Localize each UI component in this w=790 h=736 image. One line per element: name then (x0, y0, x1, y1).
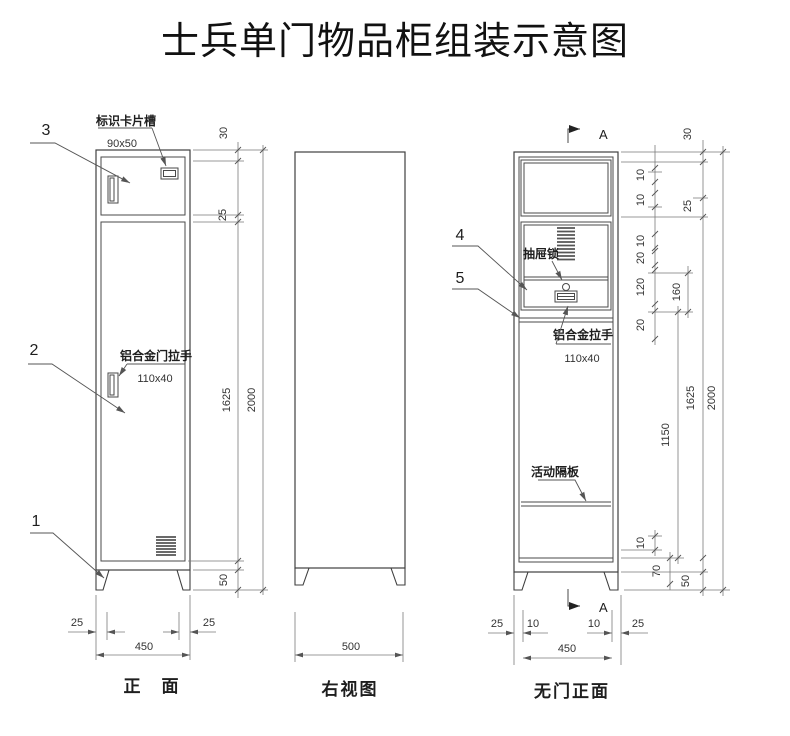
side-foot-right (391, 568, 405, 585)
front-dim-1625: 1625 (221, 388, 233, 412)
drawer-handle-label: 铝合金拉手 (553, 327, 613, 342)
nodoor-right-dims: 10 10 10 20 120 20 10 70 160 1150 30 25 … (621, 128, 730, 596)
front-dim-left-25: 25 (71, 617, 83, 629)
balloon-2: 2 (30, 342, 39, 359)
nd-dim-25: 25 (682, 200, 694, 212)
balloon-1: 1 (32, 513, 41, 530)
front-handle-label: 铝合金门拉手 (120, 348, 192, 363)
nd-dim-2000: 2000 (706, 386, 718, 410)
nd-dim-10c: 10 (635, 235, 647, 247)
nd-dim-70: 70 (651, 565, 663, 577)
section-letter-bottom: A (599, 600, 608, 615)
side-dim-500: 500 (342, 641, 360, 653)
drawer-lock-label: 抽屉锁 (523, 246, 559, 261)
balloon-5: 5 (456, 270, 465, 287)
nd-dim-50: 50 (680, 575, 692, 587)
front-dim-2000: 2000 (246, 388, 258, 412)
drawer-handle-size: 110x40 (564, 353, 599, 365)
section-letter-top: A (599, 127, 608, 142)
front-cabinet-outline (96, 150, 190, 590)
front-handle-size: 110x40 (137, 373, 172, 385)
nd-dim-1150: 1150 (660, 423, 672, 447)
nd-dim-b25r: 25 (632, 618, 644, 630)
nodoor-cabinet-outline (514, 152, 618, 590)
card-slot-label: 标识卡片槽 (95, 113, 156, 128)
nd-dim-b10l: 10 (527, 618, 539, 630)
nd-dim-b10r: 10 (588, 618, 600, 630)
drawing-title: 士兵单门物品柜组装示意图 (161, 21, 629, 63)
front-dim-50: 50 (218, 574, 230, 586)
front-bottom-dims: 25 25 450 (68, 595, 216, 660)
section-mark-top: A (568, 127, 608, 143)
front-dim-right-25: 25 (203, 617, 215, 629)
nd-dim-10d: 10 (635, 537, 647, 549)
shelf-label: 活动隔板 (531, 464, 580, 479)
front-right-dims: 30 25 1625 2000 50 (188, 127, 268, 598)
front-view: 3 2 1 标识卡片槽 90x50 铝合金门拉手 110x40 30 25 16… (28, 113, 268, 696)
side-bottom-dims: 500 (295, 612, 403, 662)
assembly-drawing: 士兵单门物品柜组装示意图 3 2 1 (0, 0, 790, 736)
card-slot-size: 90x50 (107, 138, 137, 150)
nd-dim-1625: 1625 (685, 386, 697, 410)
shelf-leader (538, 480, 586, 501)
card-slot (161, 168, 178, 179)
side-view-label: 右视图 (322, 679, 379, 699)
vent-grille-front (156, 537, 176, 555)
nodoor-view-label: 无门正面 (533, 681, 610, 701)
balloon-4: 4 (456, 227, 465, 244)
drawer-handle (555, 291, 577, 302)
drawing-sheet: 士兵单门物品柜组装示意图 3 2 1 (0, 0, 790, 736)
front-dim-25: 25 (217, 209, 229, 221)
side-cabinet-outline (295, 152, 405, 568)
front-dim-450: 450 (135, 641, 153, 653)
front-dim-30: 30 (218, 127, 230, 139)
nd-dim-20a: 20 (635, 252, 647, 264)
nd-dim-20b: 20 (635, 319, 647, 331)
nd-dim-450: 450 (558, 643, 576, 655)
nd-dim-10b: 10 (635, 194, 647, 206)
front-handle-leader (119, 364, 127, 376)
leader-balloon-5 (452, 289, 520, 318)
drawer-lock-cylinder (563, 284, 570, 291)
section-mark-bottom: A (568, 589, 608, 615)
main-door-handle (108, 373, 118, 397)
nodoor-view: A A 4 5 抽屉锁 铝合金拉手 110x40 活动隔板 10 10 (452, 127, 730, 701)
balloon-3: 3 (42, 122, 51, 139)
nd-dim-b25l: 25 (491, 618, 503, 630)
side-view: 500 右视图 (295, 152, 405, 699)
leader-balloon-1 (30, 533, 104, 578)
nd-dim-10a: 10 (635, 169, 647, 181)
top-door-handle (108, 176, 118, 203)
front-view-label: 正 面 (124, 677, 181, 696)
nd-dim-160: 160 (671, 283, 683, 301)
nd-dim-30: 30 (682, 128, 694, 140)
vent-grille-nodoor (557, 228, 575, 260)
side-foot-left (295, 568, 309, 585)
nd-dim-120: 120 (635, 278, 647, 296)
card-slot-leader (152, 128, 166, 166)
